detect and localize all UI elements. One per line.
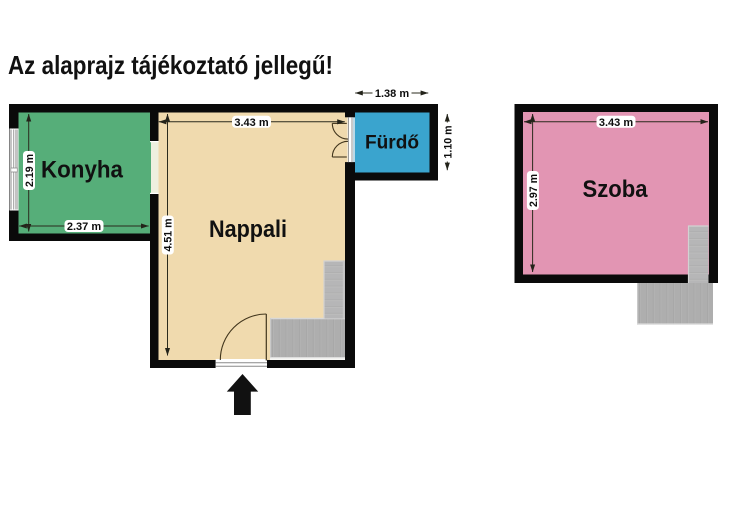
svg-text:3.43 m: 3.43 m xyxy=(599,117,633,129)
svg-text:Szoba: Szoba xyxy=(583,176,649,203)
svg-text:2.37 m: 2.37 m xyxy=(67,221,101,233)
svg-text:1.38 m: 1.38 m xyxy=(375,88,409,100)
svg-text:4.51 m: 4.51 m xyxy=(163,218,175,251)
svg-text:Az alaprajz tájékoztató jelleg: Az alaprajz tájékoztató jellegű! xyxy=(8,50,333,80)
svg-text:3.43 m: 3.43 m xyxy=(234,117,268,129)
svg-text:1.10 m: 1.10 m xyxy=(443,125,455,158)
svg-text:Nappali: Nappali xyxy=(209,216,287,243)
svg-text:Fürdő: Fürdő xyxy=(365,132,419,153)
svg-text:2.19 m: 2.19 m xyxy=(24,154,36,187)
svg-text:2.97 m: 2.97 m xyxy=(528,174,540,207)
svg-text:Konyha: Konyha xyxy=(41,157,124,184)
